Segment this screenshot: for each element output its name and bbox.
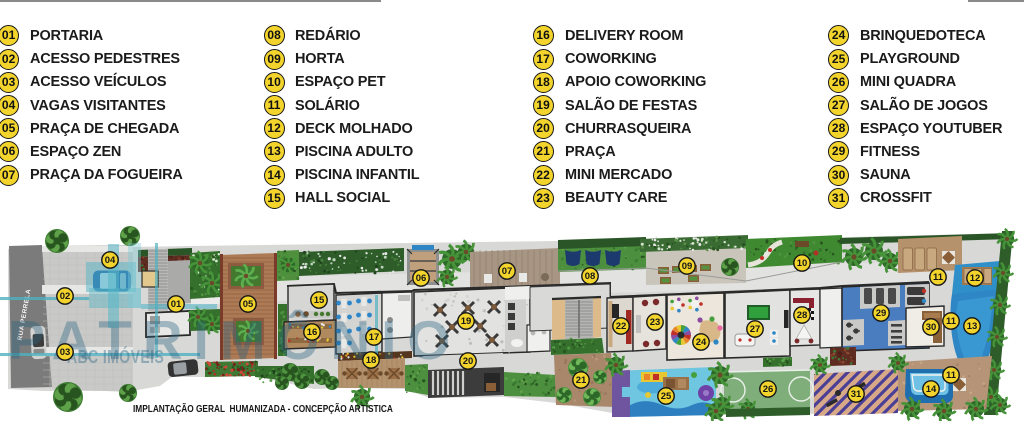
svg-text:20: 20 (463, 356, 474, 367)
svg-text:11: 11 (946, 316, 957, 327)
svg-text:01: 01 (171, 299, 182, 310)
svg-text:11: 11 (933, 272, 944, 283)
svg-text:07: 07 (502, 266, 513, 277)
svg-text:30: 30 (926, 322, 937, 333)
svg-text:12: 12 (970, 273, 981, 284)
svg-text:11: 11 (946, 370, 957, 381)
svg-text:24: 24 (696, 337, 707, 348)
svg-text:22: 22 (616, 321, 627, 332)
svg-text:28: 28 (797, 310, 808, 321)
svg-text:23: 23 (650, 317, 661, 328)
svg-text:21: 21 (576, 375, 587, 386)
svg-text:15: 15 (314, 295, 325, 306)
svg-text:27: 27 (750, 324, 761, 335)
svg-text:25: 25 (661, 391, 672, 402)
svg-text:09: 09 (682, 261, 693, 272)
svg-text:08: 08 (585, 271, 596, 282)
svg-text:04: 04 (105, 255, 116, 266)
svg-text:31: 31 (851, 389, 862, 400)
svg-text:16: 16 (307, 327, 318, 338)
svg-text:02: 02 (60, 291, 71, 302)
svg-text:13: 13 (967, 321, 978, 332)
svg-text:26: 26 (763, 384, 774, 395)
svg-text:05: 05 (243, 299, 254, 310)
svg-text:29: 29 (876, 308, 887, 319)
svg-text:18: 18 (366, 355, 377, 366)
svg-text:03: 03 (60, 347, 71, 358)
svg-text:19: 19 (461, 316, 472, 327)
svg-text:14: 14 (926, 384, 937, 395)
svg-text:10: 10 (797, 258, 808, 269)
svg-text:06: 06 (416, 273, 427, 284)
svg-text:17: 17 (369, 332, 380, 343)
